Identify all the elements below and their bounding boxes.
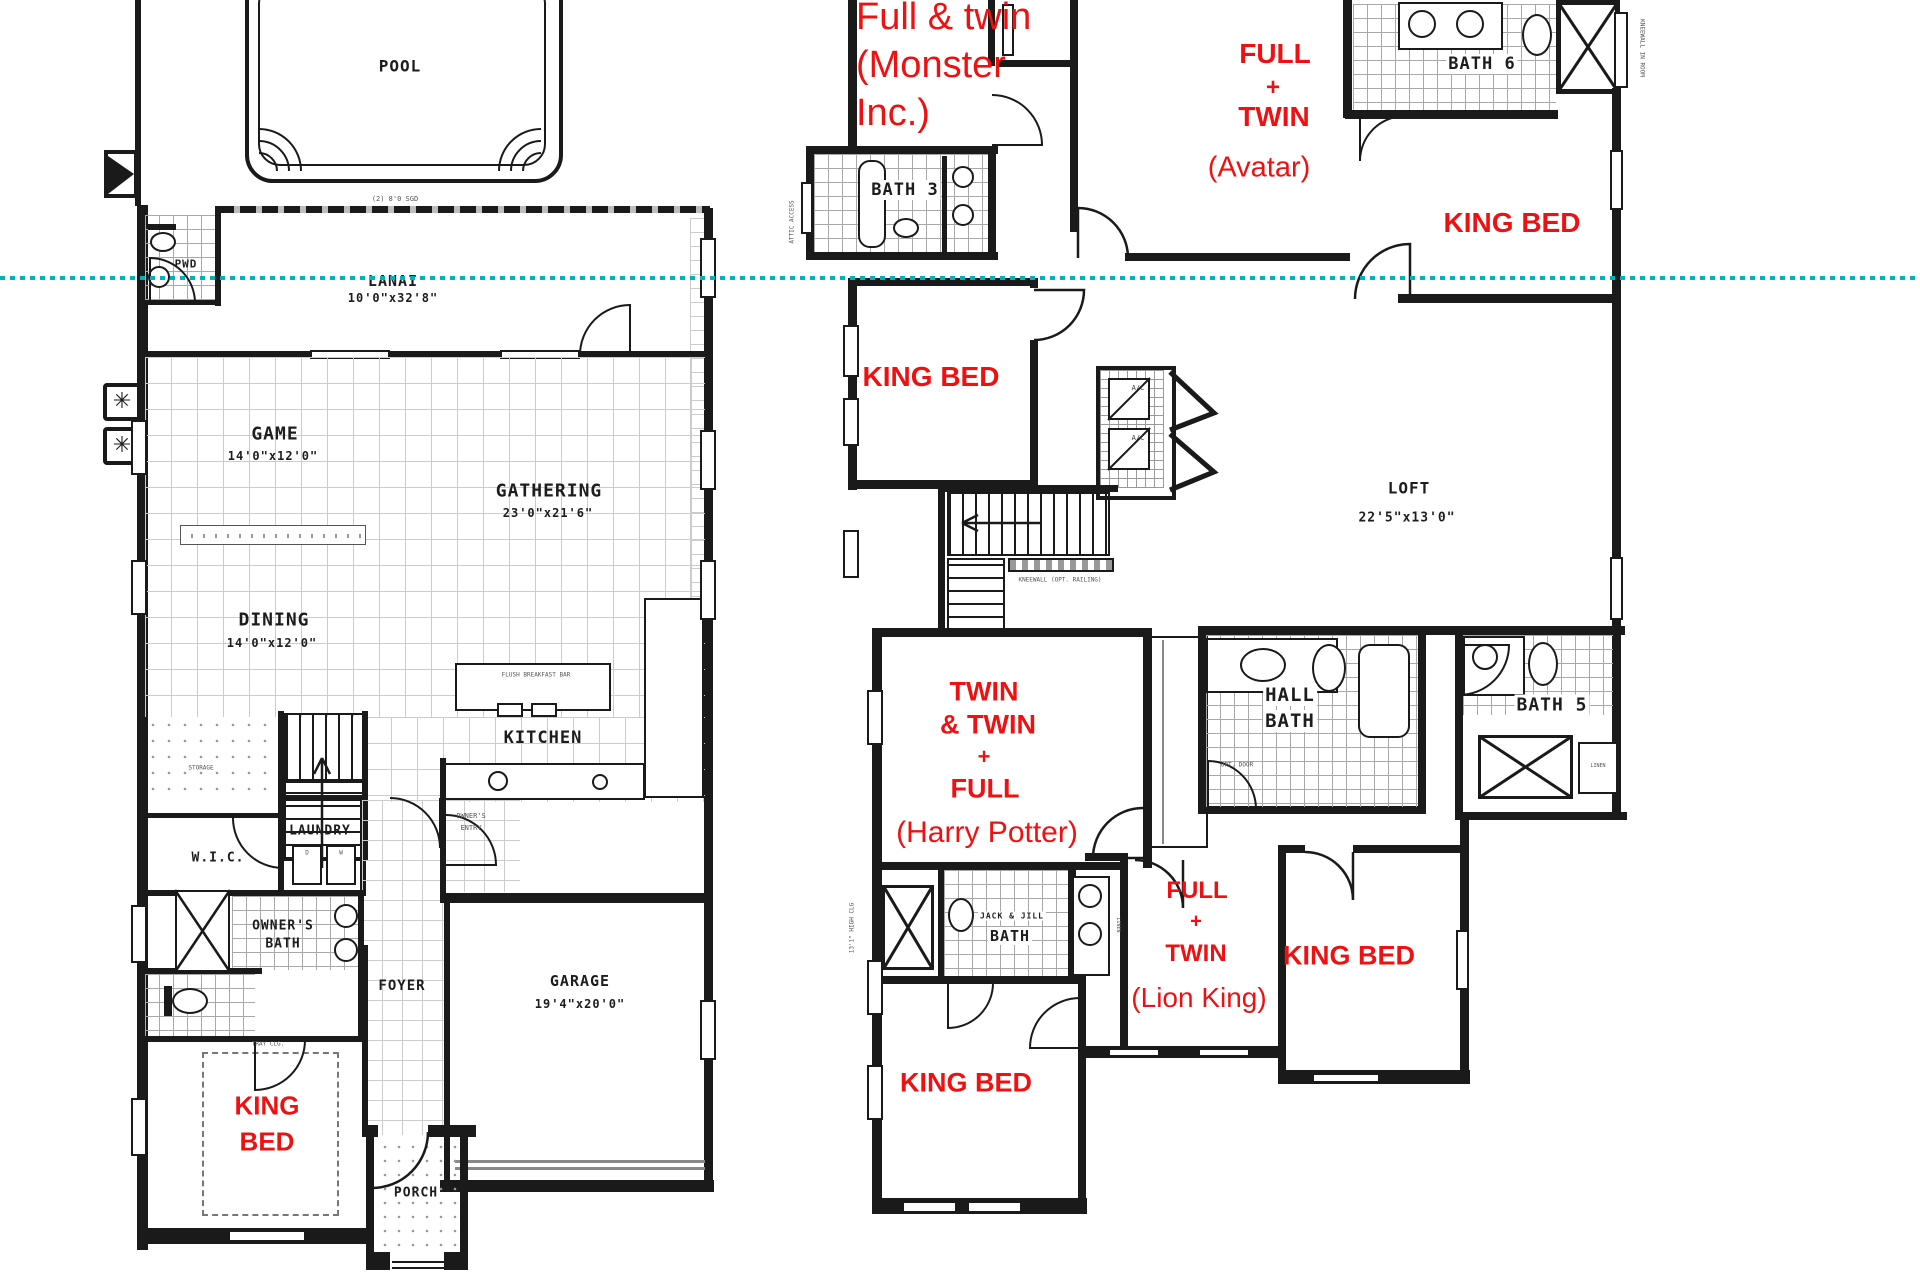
room-dim-garage: 19'4"x20'0" xyxy=(535,997,625,1011)
annotation-breakfast-bar: FLUSH BREAKFAST BAR xyxy=(502,672,571,679)
wall xyxy=(942,156,947,252)
wall xyxy=(1418,626,1426,814)
kitchen-counter-bottom xyxy=(440,763,645,800)
staircase-lower-run xyxy=(947,558,1005,633)
door-arc xyxy=(1305,852,1353,900)
staircase-upper-run xyxy=(947,492,1110,556)
bathtub xyxy=(1358,644,1410,738)
sink xyxy=(1078,884,1102,908)
sink xyxy=(1240,648,1286,682)
bed-label-harry-5: (Harry Potter) xyxy=(896,816,1078,850)
toilet xyxy=(893,218,919,238)
wall xyxy=(362,945,368,1133)
room-label-jack-jill-2: BATH xyxy=(988,927,1032,945)
bed-label-king-mid-left: KING BED xyxy=(863,361,1000,393)
wall xyxy=(872,628,882,870)
annotation-owners-entry-1: OWNER'S xyxy=(456,812,486,820)
room-label-foyer: FOYER xyxy=(378,978,425,994)
bed-label-harry-1: TWIN xyxy=(950,677,1019,708)
bed-label-lion-2: + xyxy=(1190,911,1202,934)
door-arc xyxy=(1034,290,1084,340)
staircase-upper-run xyxy=(284,713,364,781)
toilet xyxy=(1312,644,1346,692)
wall xyxy=(428,1125,476,1137)
toilet xyxy=(1528,642,1558,686)
kitchen-counter-right xyxy=(644,598,704,798)
bed-label-avatar-2: + xyxy=(1266,74,1280,102)
window xyxy=(967,1201,1022,1213)
door-arc xyxy=(948,983,993,1028)
bed-label-lion-3: TWIN xyxy=(1165,940,1226,968)
closet-rod-line xyxy=(1162,640,1164,844)
door-arc xyxy=(1078,208,1128,258)
wall xyxy=(938,485,1118,492)
room-label-game: GAME xyxy=(251,424,298,445)
window xyxy=(1108,1048,1160,1057)
cooktop xyxy=(592,774,608,790)
sink xyxy=(952,204,974,226)
toilet xyxy=(1522,14,1552,56)
island-stool xyxy=(531,703,557,717)
toilet xyxy=(948,898,974,932)
toilet-tank xyxy=(148,224,176,230)
wall xyxy=(806,146,998,154)
room-label-wic: W.I.C. xyxy=(192,851,245,866)
window xyxy=(131,1098,147,1156)
window xyxy=(700,430,716,490)
room-label-lanai: LANAI xyxy=(368,272,418,290)
annotation-high-ceiling: 13'1" HIGH CLG xyxy=(849,903,856,954)
bed-label-avatar-3: TWIN xyxy=(1238,101,1310,133)
bed-label-king-bottom-left: KING BED xyxy=(900,1068,1032,1099)
wall xyxy=(215,206,221,306)
dryer-letter: D xyxy=(305,850,309,857)
window xyxy=(700,560,716,620)
island-stool xyxy=(497,703,523,717)
window xyxy=(843,530,859,578)
wardrobe-closet xyxy=(1556,0,1620,94)
sink xyxy=(952,166,974,188)
wall xyxy=(1455,812,1627,820)
sink xyxy=(334,938,358,962)
wall xyxy=(872,862,882,1214)
room-label-bath5: BATH 5 xyxy=(1514,695,1589,716)
door-arc xyxy=(992,95,1042,145)
flex-carpet xyxy=(145,717,280,802)
ac-pad: ✳ xyxy=(103,383,141,421)
window xyxy=(1610,557,1623,620)
section-cut-line xyxy=(0,276,1920,280)
window xyxy=(1614,12,1628,88)
wall xyxy=(440,758,446,900)
wall xyxy=(1198,626,1625,635)
room-label-dining: DINING xyxy=(238,610,309,631)
wall xyxy=(988,146,996,260)
annotation-sliding-door: (2) 8'0 SGD xyxy=(372,195,418,203)
room-label-owners-bath-1: OWNER'S xyxy=(252,919,314,934)
ac-label-2: A/C xyxy=(1132,434,1145,442)
bed-label-avatar-1: FULL xyxy=(1239,38,1311,70)
toilet xyxy=(172,988,208,1014)
ac-label-1: A/C xyxy=(1132,384,1145,392)
room-label-hall-bath-1: HALL xyxy=(1263,684,1317,706)
bed-label-harry-2: & TWIN xyxy=(940,710,1036,741)
wall xyxy=(1198,626,1206,814)
wall xyxy=(278,795,284,895)
window xyxy=(1456,930,1469,990)
door-arc xyxy=(1030,998,1080,1048)
window xyxy=(700,238,716,298)
annotation-opt-door: OPT. DOOR xyxy=(1221,762,1254,769)
room-label-kitchen: KITCHEN xyxy=(504,728,583,748)
window xyxy=(902,1201,957,1213)
wall xyxy=(1085,853,1128,861)
room-label-laundry: LAUNDRY xyxy=(289,824,351,839)
annotation-linen-vertical: LINEN xyxy=(1115,917,1121,932)
room-label-owners-bath-2: BATH xyxy=(265,937,300,952)
bed-label-king-1: KING xyxy=(235,1091,300,1122)
porch-post xyxy=(366,1252,390,1270)
wall xyxy=(1078,976,1086,1214)
closet xyxy=(1478,735,1573,799)
bed-label-monster-3: Inc.) xyxy=(856,92,930,135)
bed-label-monster-1: Full & twin xyxy=(856,0,1031,39)
bed-label-lion-4: (Lion King) xyxy=(1131,982,1266,1014)
sink xyxy=(1456,10,1484,38)
room-label-porch: PORCH xyxy=(394,1186,438,1201)
room-label-jack-jill-1: JACK & JILL xyxy=(978,912,1046,921)
annotation-storage: STORAGE xyxy=(188,765,213,772)
wall xyxy=(440,893,712,903)
stair-kneewall xyxy=(1008,558,1114,572)
wall xyxy=(996,60,1076,67)
wall xyxy=(1398,294,1621,303)
louver-doors xyxy=(1170,372,1214,490)
door-arc xyxy=(1093,808,1143,858)
wall xyxy=(1125,253,1350,261)
room-dim-game: 14'0"x12'0" xyxy=(228,449,318,463)
room-dim-loft: 22'5"x13'0" xyxy=(1358,511,1455,526)
sink xyxy=(334,904,358,928)
window xyxy=(700,1000,716,1060)
annotation-owners-entry-2: ENTRY xyxy=(460,824,481,832)
porch-post xyxy=(444,1252,468,1270)
ceiling-beam xyxy=(180,525,366,545)
wall xyxy=(1455,626,1463,818)
closet xyxy=(882,885,934,970)
wall xyxy=(143,813,283,818)
garage-door-line xyxy=(455,1160,705,1163)
annotation-kneewall: KNEEWALL (OPT. RAILING) xyxy=(1018,577,1101,584)
window xyxy=(843,325,859,377)
wall xyxy=(1353,845,1465,853)
garage-door-line xyxy=(455,1167,705,1170)
room-label-bath3: BATH 3 xyxy=(869,180,940,200)
lanai-sliding-door-wall xyxy=(218,206,710,213)
wall xyxy=(872,862,1122,870)
bed-label-king-2: BED xyxy=(240,1127,295,1158)
room-label-pwd: PWD xyxy=(175,258,198,271)
room-dim-gathering: 23'0"x21'6" xyxy=(503,506,593,520)
room-label-loft: LOFT xyxy=(1388,479,1431,498)
pool-equipment-pad xyxy=(104,150,138,198)
window xyxy=(1198,1048,1250,1057)
sink xyxy=(1472,644,1498,670)
room-label-bath6: BATH 6 xyxy=(1446,54,1517,74)
room-label-gathering: GATHERING xyxy=(496,481,603,502)
window xyxy=(131,420,147,475)
shower xyxy=(175,890,230,972)
bathtub xyxy=(858,160,886,248)
wall xyxy=(1343,0,1352,118)
annotation-kneewall-in-room: KNEEWALL IN ROOM xyxy=(1639,19,1646,77)
wall xyxy=(877,976,1082,984)
wall xyxy=(848,278,857,490)
window xyxy=(131,905,147,963)
window xyxy=(1610,150,1623,210)
wall xyxy=(1120,853,1128,1053)
window xyxy=(867,960,883,1015)
room-label-pool: POOL xyxy=(379,57,422,76)
window xyxy=(801,182,813,234)
wall xyxy=(938,485,945,637)
annotation-attic-access: ATTIC ACCESS xyxy=(789,200,796,243)
window xyxy=(228,1230,306,1242)
wall xyxy=(1345,110,1558,119)
bed-label-harry-4: FULL xyxy=(951,774,1020,805)
wall xyxy=(806,252,998,260)
door-arc xyxy=(580,305,630,355)
porch-steps xyxy=(392,1262,444,1268)
bed-label-harry-3: + xyxy=(978,744,991,770)
bed-label-monster-2: (Monster xyxy=(856,44,1006,87)
toilet-tank xyxy=(164,986,172,1016)
sink xyxy=(1078,922,1102,946)
bed-label-avatar-4: (Avatar) xyxy=(1208,152,1311,185)
toilet xyxy=(150,232,176,252)
foyer-tile xyxy=(362,800,444,1135)
room-dim-dining: 14'0"x12'0" xyxy=(227,636,317,650)
annotation-linen: LINEN xyxy=(1590,763,1605,769)
sink xyxy=(1408,10,1436,38)
wall xyxy=(872,628,1152,637)
bed-label-lion-1: FULL xyxy=(1166,877,1227,905)
window xyxy=(1312,1073,1380,1083)
room-dim-lanai: 10'0"x32'8" xyxy=(348,291,438,305)
fan-icon: ✳ xyxy=(113,388,131,414)
door-arc xyxy=(1360,116,1405,161)
window xyxy=(867,1065,883,1120)
fan-icon: ✳ xyxy=(113,432,131,458)
wall xyxy=(1285,845,1305,853)
wall xyxy=(140,300,220,305)
window xyxy=(131,560,147,615)
room-label-garage: GARAGE xyxy=(550,972,610,990)
window xyxy=(867,690,883,745)
annotation-tray-ceiling: TRAY CLG. xyxy=(252,1041,285,1048)
door-arc xyxy=(1355,244,1410,299)
room-label-hall-bath-2: BATH xyxy=(1263,710,1317,732)
washer-letter: W xyxy=(339,850,343,857)
bed-label-king-top-right: KING BED xyxy=(1444,207,1581,239)
window xyxy=(843,398,859,446)
wall xyxy=(278,795,366,801)
wall xyxy=(1030,340,1038,489)
wall xyxy=(440,1180,714,1192)
floor-plan-canvas: POOL (2) 8'0 SGD LANAI 10'0"x32'8" PWD G… xyxy=(0,0,1920,1280)
kitchen-sink xyxy=(488,771,508,791)
wall xyxy=(460,1133,468,1270)
pool-inner-outline xyxy=(258,0,546,166)
wall xyxy=(366,1133,374,1270)
wall xyxy=(1070,0,1078,232)
wall xyxy=(1198,806,1426,814)
bed-label-king-bottom-right: KING BED xyxy=(1283,941,1415,972)
